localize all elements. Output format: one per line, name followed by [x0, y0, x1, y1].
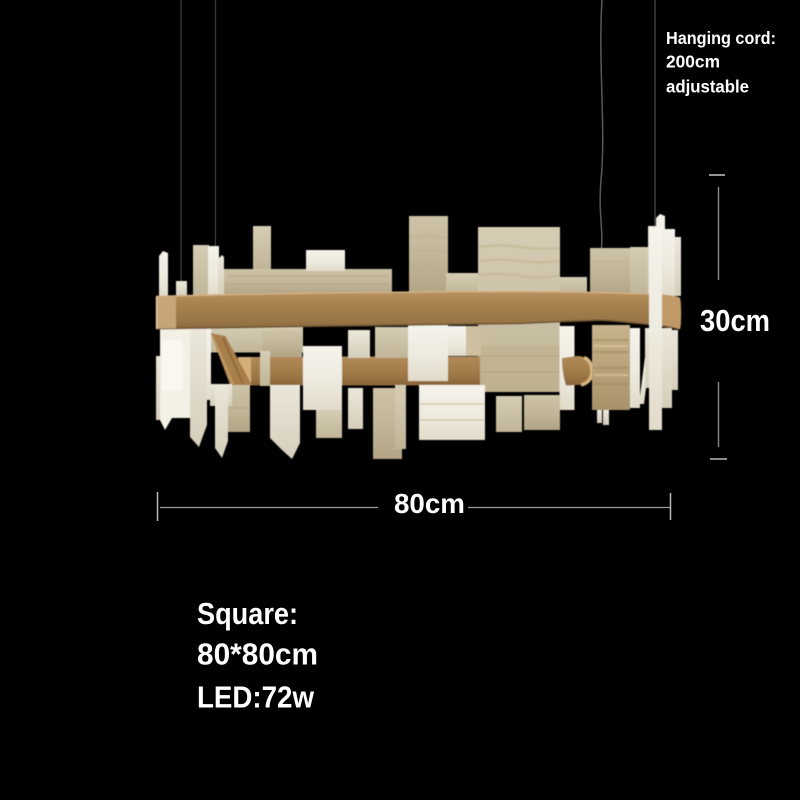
svg-text:LED:72w: LED:72w — [197, 681, 314, 715]
svg-text:Hanging cord:: Hanging cord: — [666, 28, 776, 48]
svg-text:80*80cm: 80*80cm — [197, 638, 318, 672]
svg-text:30cm: 30cm — [700, 303, 770, 338]
svg-text:80cm: 80cm — [394, 488, 465, 519]
svg-text:200cm: 200cm — [666, 52, 720, 72]
svg-text:adjustable: adjustable — [666, 77, 749, 97]
svg-text:Square:: Square: — [197, 597, 298, 631]
